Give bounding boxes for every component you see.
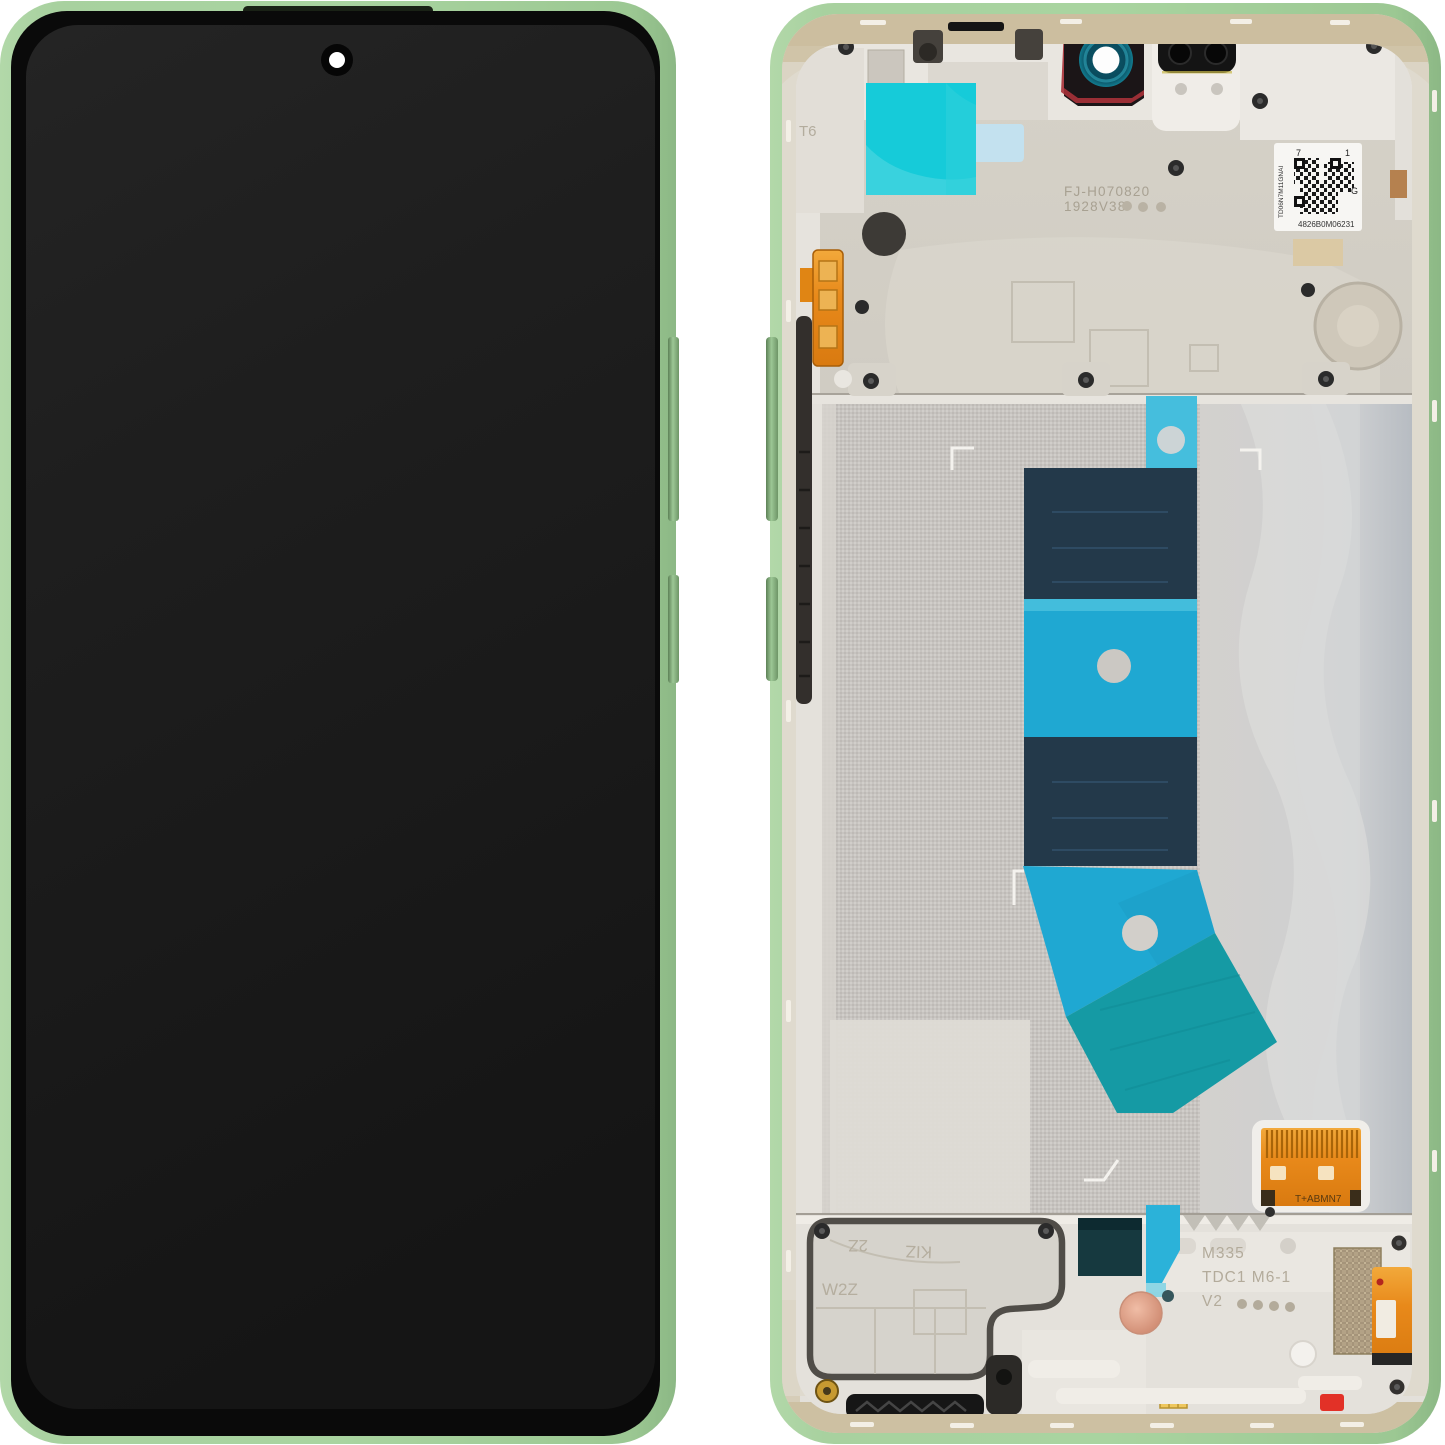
svg-text:T+ABMN7: T+ABMN7: [1295, 1194, 1342, 1205]
svg-text:W2Z: W2Z: [822, 1280, 858, 1299]
svg-text:7: 7: [1296, 148, 1301, 158]
svg-text:T6: T6: [799, 123, 817, 140]
svg-text:TD06N7M11GNAI: TD06N7M11GNAI: [1278, 166, 1285, 218]
svg-text:4826B0M06231: 4826B0M06231: [1298, 220, 1355, 229]
svg-text:G: G: [1351, 186, 1358, 196]
svg-text:1: 1: [1345, 148, 1350, 158]
svg-text:2Z: 2Z: [848, 1236, 868, 1255]
svg-text:FJ-H070820: FJ-H070820: [1064, 184, 1150, 199]
svg-text:KIZ: KIZ: [905, 1242, 932, 1262]
svg-text:TDC1 M6-1: TDC1 M6-1: [1202, 1269, 1291, 1286]
svg-text:V2: V2: [1202, 1293, 1223, 1310]
svg-text:1928V38: 1928V38: [1064, 199, 1126, 214]
svg-text:M335: M335: [1202, 1245, 1245, 1262]
